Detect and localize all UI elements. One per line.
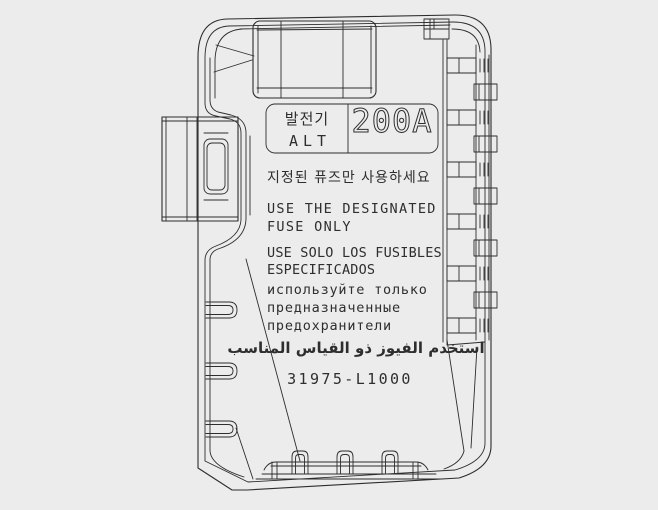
component-name-korean: 발전기: [285, 110, 329, 128]
amperage-rating: 200A: [351, 102, 432, 140]
warning-korean: 지정된 퓨즈만 사용하세요: [267, 170, 431, 186]
warning-russian-line2: предназначенные: [267, 300, 401, 316]
fuse-cover-technical-drawing: 발전기 ALT 200A 지정된 퓨즈만 사용하세요 USE THE DESIG…: [0, 0, 658, 510]
part-number: 31975-L1000: [287, 370, 413, 388]
warning-english-line1: USE THE DESIGNATED: [267, 201, 437, 217]
top-handle-block: [253, 21, 376, 98]
fuse-cover-drawing-page: 발전기 ALT 200A 지정된 퓨즈만 사용하세요 USE THE DESIG…: [0, 0, 658, 510]
warning-english-line2: FUSE ONLY: [267, 219, 352, 235]
warning-russian-line3: предохранители: [267, 318, 392, 334]
left-side-tabs: [206, 302, 237, 437]
component-name-abbr: ALT: [289, 132, 331, 150]
right-rib-strip: [443, 40, 497, 345]
warning-russian-line1: используйте только: [267, 282, 428, 298]
warning-arabic: استخدم الفيوز ذو القياس المناسب: [227, 339, 484, 357]
warning-spanish-line2: ESPECIFICADOS: [267, 262, 375, 278]
bottom-ledge-tabs: [256, 451, 442, 479]
rating-label-box: 발전기 ALT 200A: [266, 102, 438, 153]
left-connector-latch: [162, 117, 238, 221]
warning-text-block: 지정된 퓨즈만 사용하세요 USE THE DESIGNATED FUSE ON…: [227, 170, 484, 388]
warning-spanish-line1: USE SOLO LOS FUSIBLES: [267, 245, 442, 261]
